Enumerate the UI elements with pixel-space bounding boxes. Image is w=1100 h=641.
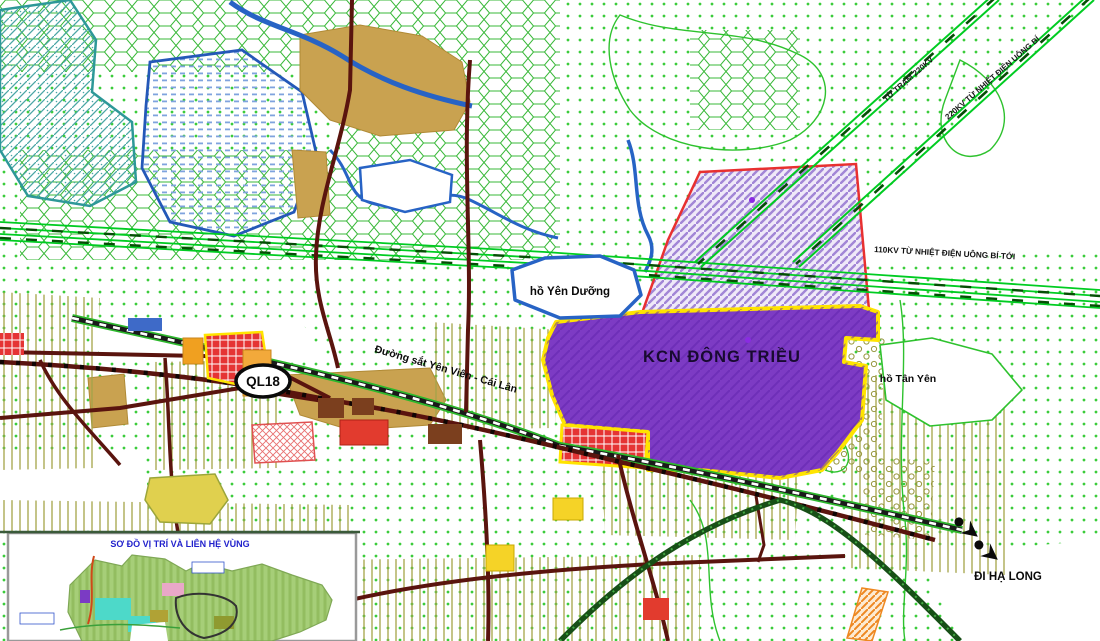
site-marker-icon — [749, 197, 755, 203]
yellow-block — [486, 545, 514, 571]
site-marker-icon — [745, 337, 751, 343]
brown-block — [352, 398, 374, 415]
orange-block — [183, 338, 203, 364]
lake-yen-duong-label: hồ Yên Dưỡng — [530, 286, 610, 298]
red-block — [340, 420, 388, 445]
inset-region-label-box — [20, 613, 54, 624]
red-grid-block — [0, 333, 24, 355]
route-badge-label: QL18 — [246, 374, 280, 389]
pink-crosshatch-block — [252, 422, 315, 463]
inset-region-label-box — [192, 562, 224, 573]
lake-tan-yen-label: hồ Tân Yên — [880, 373, 936, 385]
planning-map-canvas[interactable]: hồ Yên Dưỡng hồ Tân Yên KCN ĐÔNG TRIỀU 1… — [0, 0, 1100, 641]
brown-block — [428, 424, 462, 444]
red-block — [643, 598, 669, 620]
yellow-block — [553, 498, 583, 520]
route-badge-ql18: QL18 — [236, 365, 290, 397]
brown-block — [318, 398, 344, 418]
yellow-green-block — [145, 474, 228, 524]
inset-location-map: SƠ ĐỒ VỊ TRÍ VÀ LIÊN HỆ VÙNG — [0, 532, 360, 641]
blue-block — [128, 318, 162, 331]
map-svg: hồ Yên Dưỡng hồ Tân Yên KCN ĐÔNG TRIỀU 1… — [0, 0, 1100, 641]
direction-ha-long-label: ĐI HẠ LONG — [974, 571, 1042, 583]
inset-title: SƠ ĐỒ VỊ TRÍ VÀ LIÊN HỆ VÙNG — [110, 538, 249, 549]
industrial-zone-label: KCN ĐÔNG TRIỀU — [643, 347, 801, 366]
